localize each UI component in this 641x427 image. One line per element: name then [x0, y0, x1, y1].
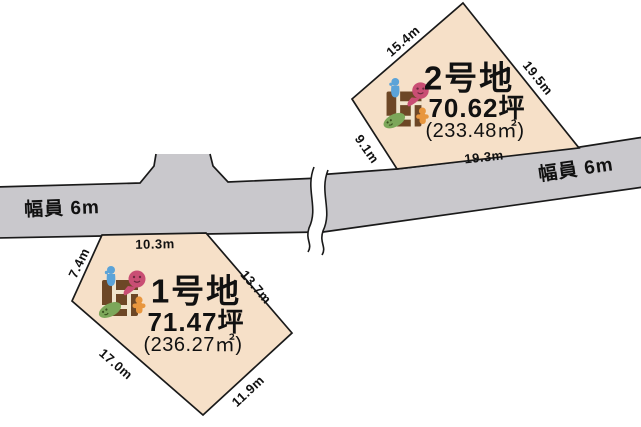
road-left-segment	[0, 154, 320, 238]
land-plot-diagram: 幅員 6m 幅員 6m 1号地 71.47坪 (236.27㎡) 10.3m 7…	[0, 0, 641, 427]
plot-2-name: 2号地	[424, 60, 514, 97]
plot-1-area: (236.27㎡)	[144, 332, 243, 356]
plot-2-area: (233.48㎡)	[426, 118, 525, 142]
plot-1-tsubo: 71.47坪	[147, 307, 244, 337]
road-width-label-left: 幅員 6m	[24, 195, 101, 221]
site-plan-svg: 幅員 6m 幅員 6m 1号地 71.47坪 (236.27㎡) 10.3m 7…	[0, 0, 641, 427]
plot-2-tsubo: 70.62坪	[428, 93, 525, 123]
plot-1-name: 1号地	[151, 273, 241, 310]
plot-1-dim-top: 10.3m	[135, 236, 175, 252]
